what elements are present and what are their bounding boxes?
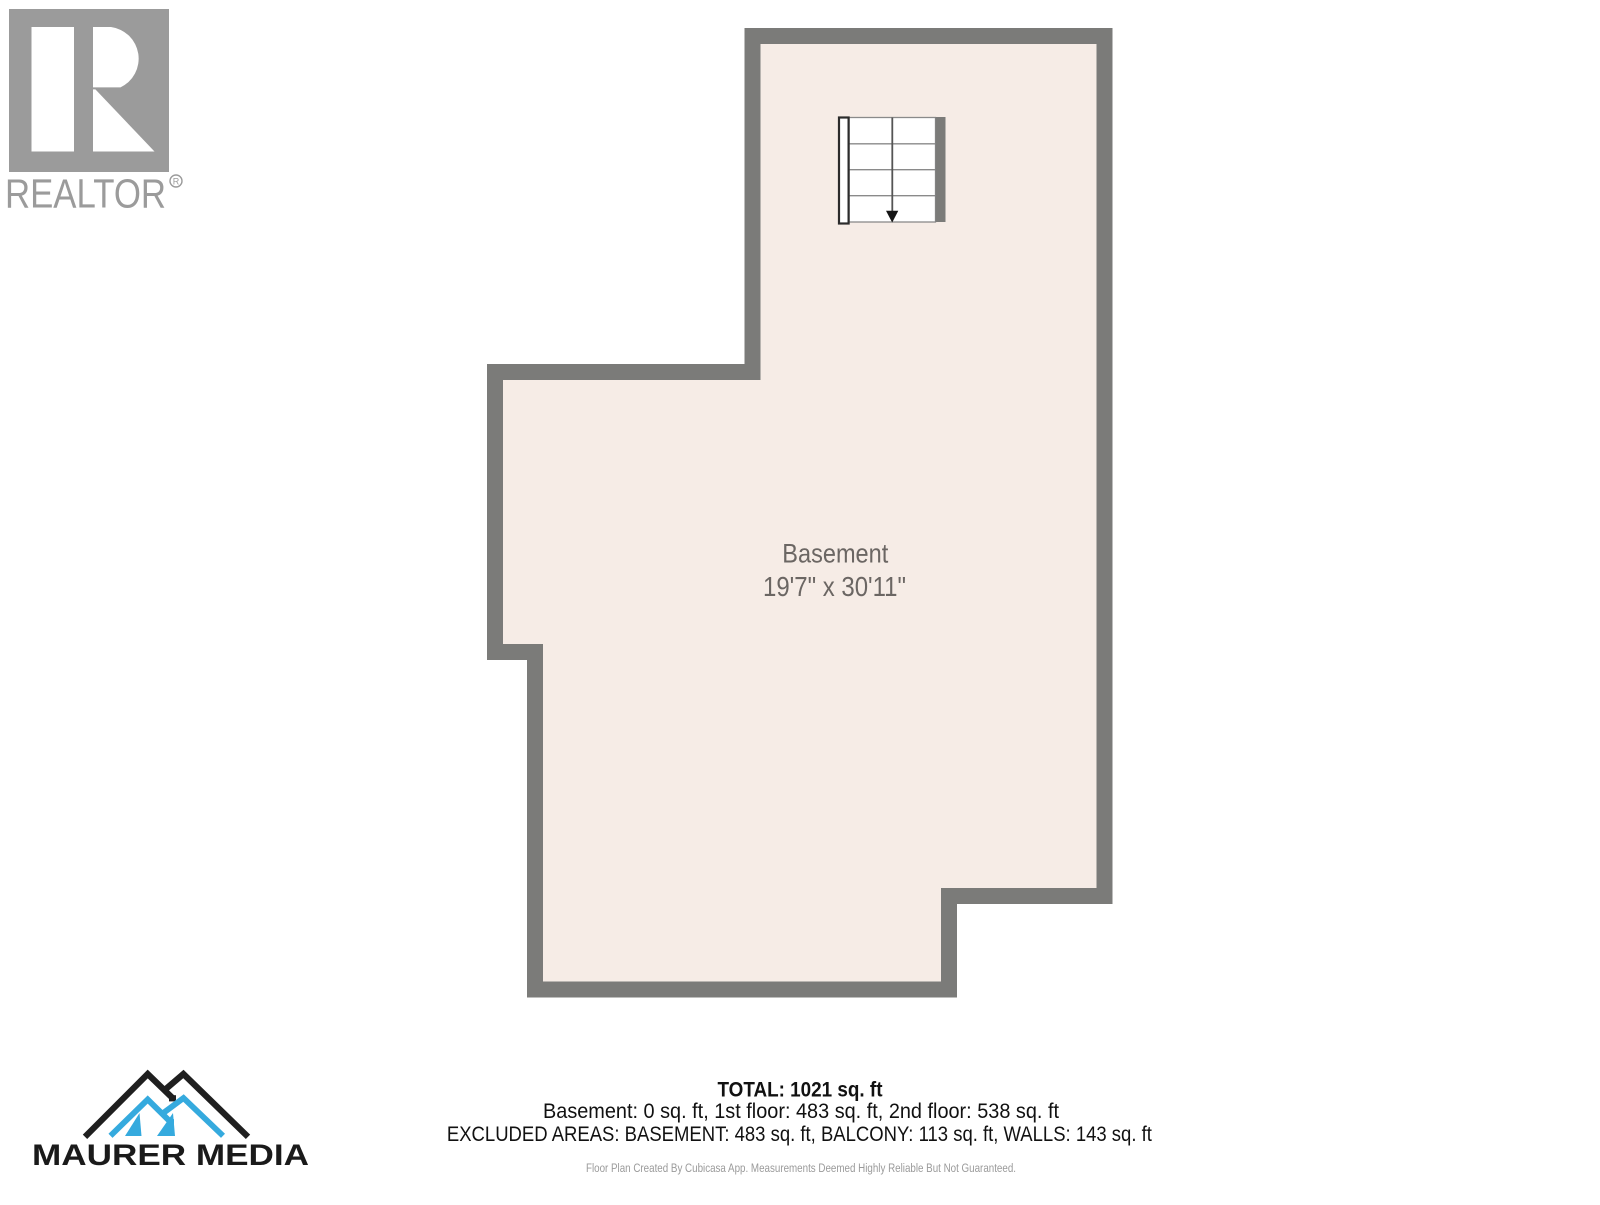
svg-text:REALTOR: REALTOR xyxy=(5,170,166,216)
svg-text:EXCLUDED AREAS: BASEMENT: 483: EXCLUDED AREAS: BASEMENT: 483 sq. ft, BA… xyxy=(447,1123,1152,1146)
svg-text:MAURER MEDIA: MAURER MEDIA xyxy=(32,1139,309,1172)
svg-text:Basement: 0 sq. ft, 1st floor:: Basement: 0 sq. ft, 1st floor: 483 sq. f… xyxy=(543,1100,1059,1123)
svg-text:Floor Plan Created By Cubicasa: Floor Plan Created By Cubicasa App. Meas… xyxy=(586,1161,1016,1175)
svg-text:R: R xyxy=(173,177,180,187)
svg-text:19'7" x 30'11": 19'7" x 30'11" xyxy=(763,571,906,602)
svg-text:TOTAL: 1021 sq. ft: TOTAL: 1021 sq. ft xyxy=(718,1077,883,1101)
svg-text:Basement: Basement xyxy=(782,538,889,568)
